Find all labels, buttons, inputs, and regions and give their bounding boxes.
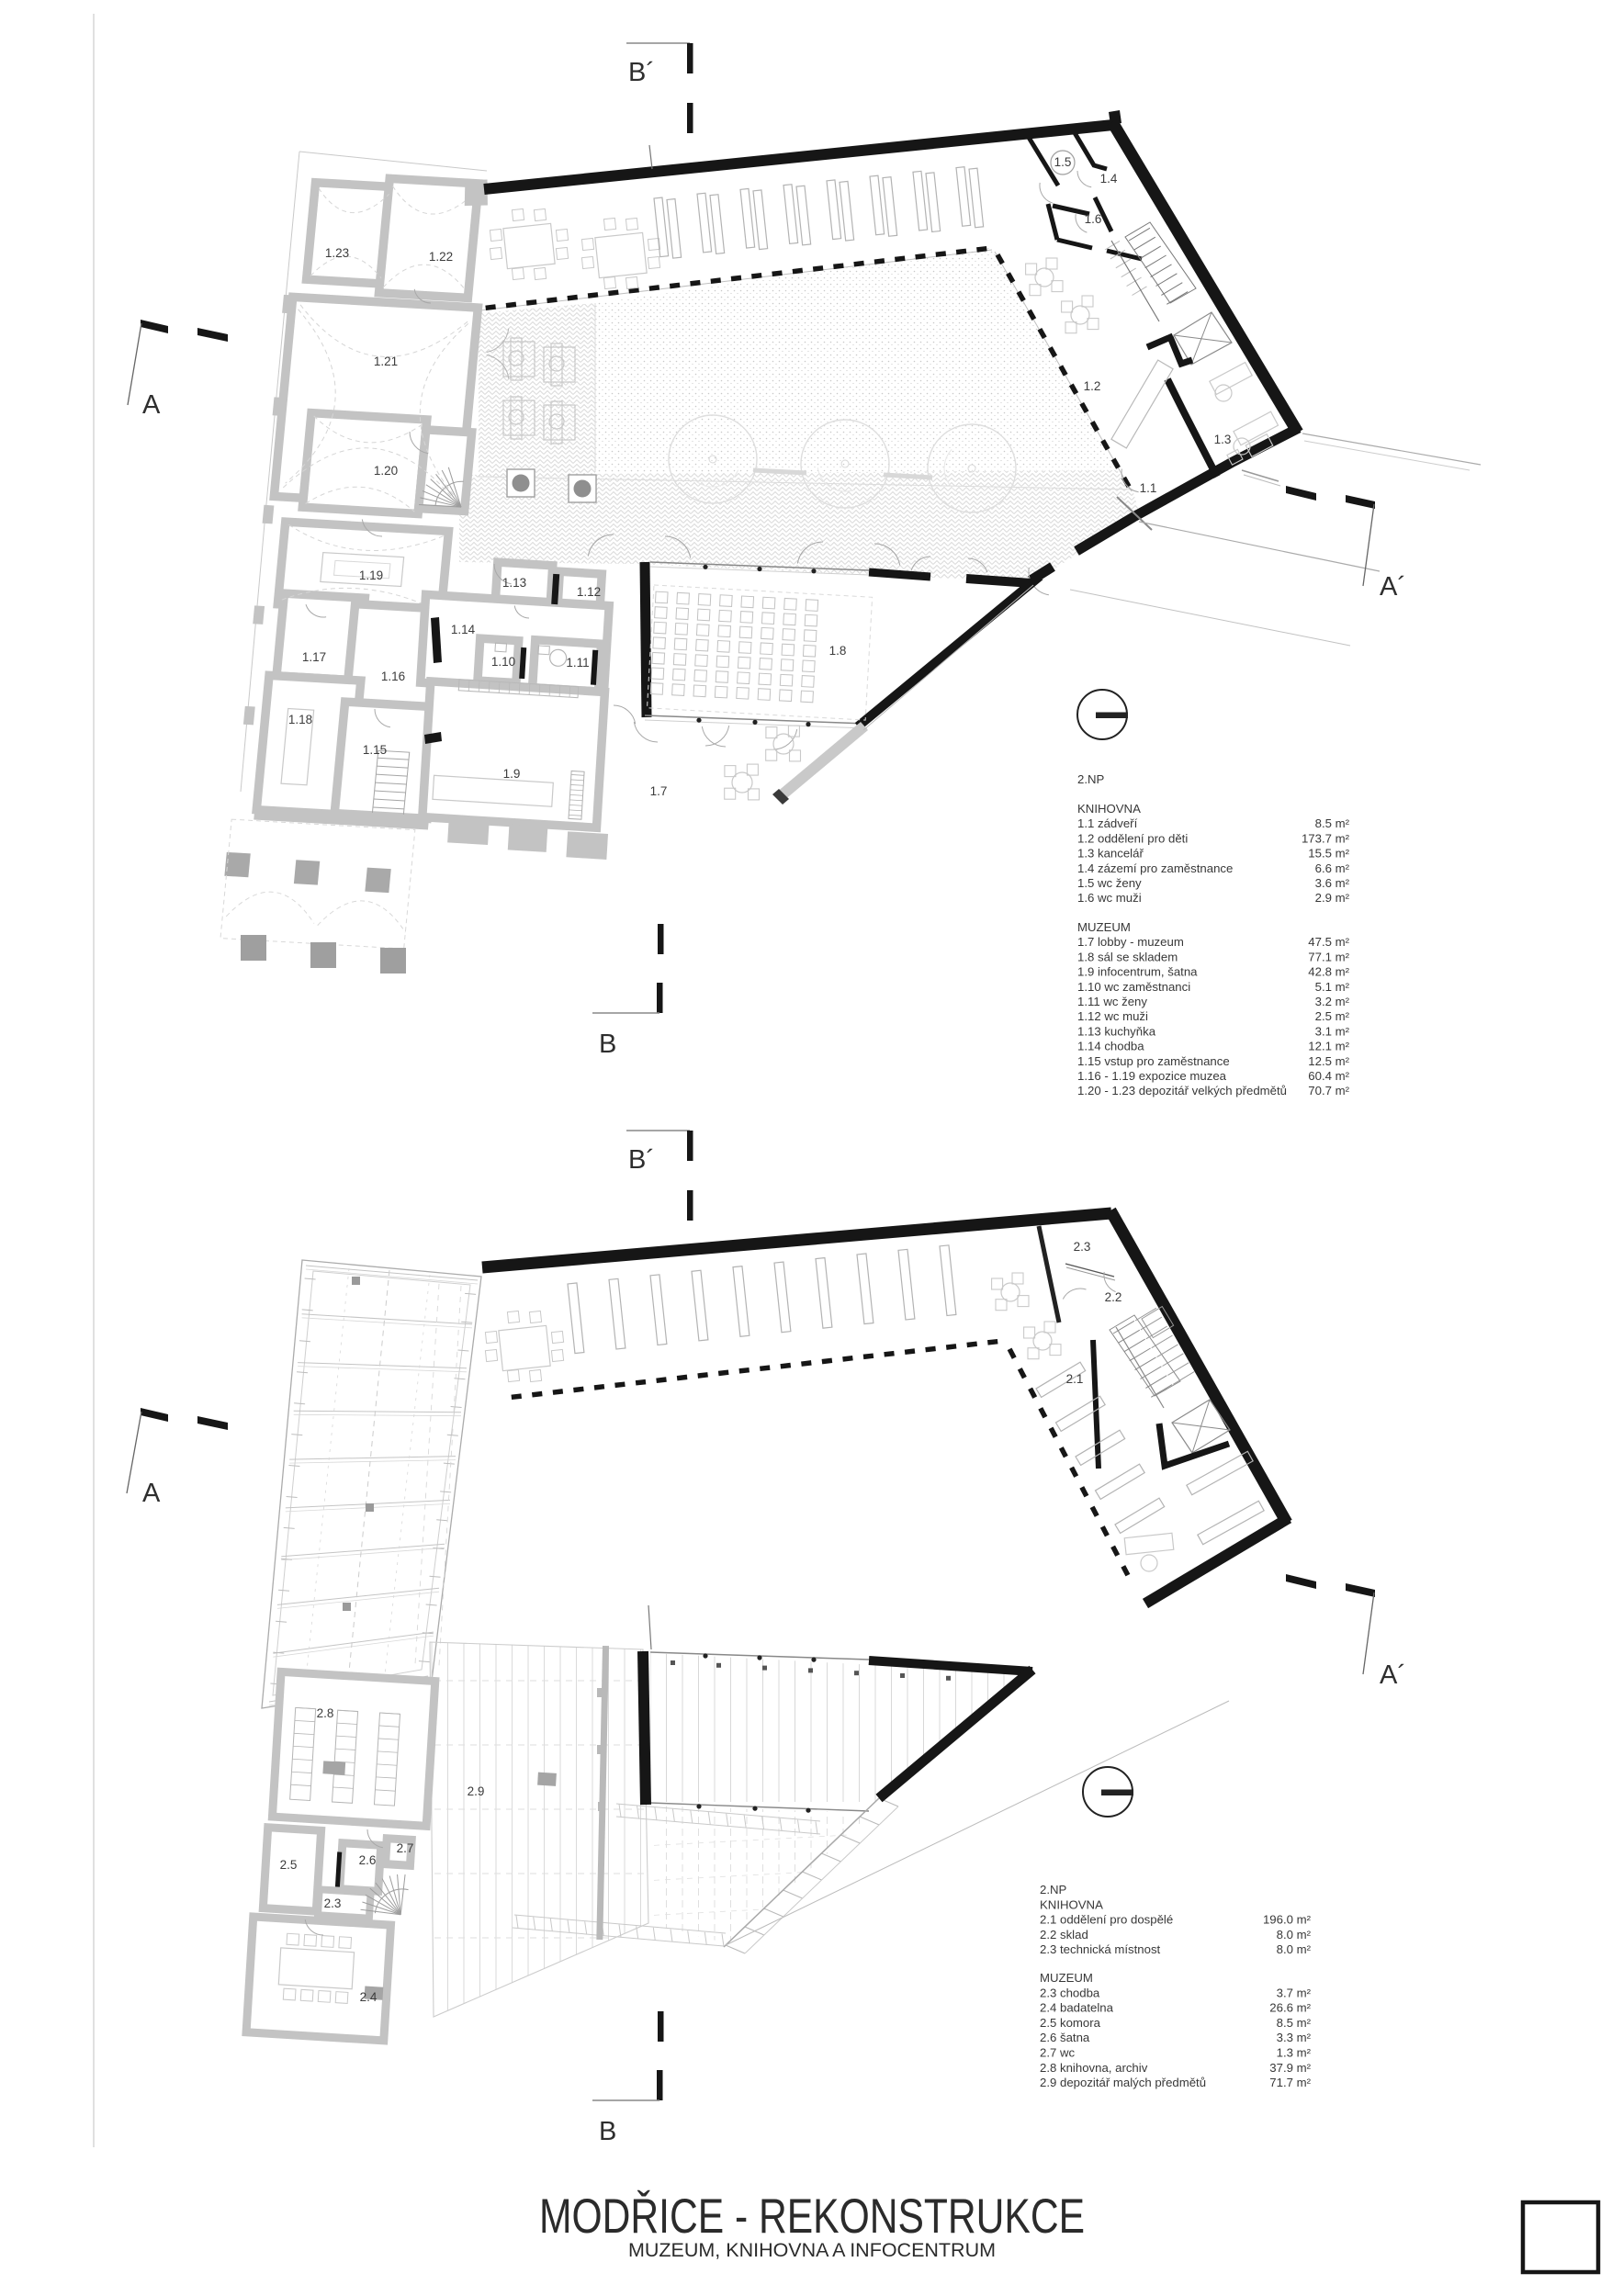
svg-text:A´: A´ — [1380, 572, 1406, 602]
svg-text:60.4 m²: 60.4 m² — [1308, 1069, 1349, 1083]
svg-text:1.10: 1.10 — [491, 655, 515, 669]
svg-text:3.1 m²: 3.1 m² — [1315, 1024, 1350, 1038]
svg-text:2.1 oddělení pro dospělé: 2.1 oddělení pro dospělé — [1040, 1913, 1173, 1927]
svg-text:B´: B´ — [628, 58, 655, 87]
svg-text:1.14: 1.14 — [451, 623, 476, 636]
svg-text:2.3: 2.3 — [1074, 1240, 1091, 1254]
svg-text:1.5 wc ženy: 1.5 wc ženy — [1077, 876, 1142, 890]
svg-text:196.0 m²: 196.0 m² — [1263, 1913, 1312, 1927]
svg-text:2.NP: 2.NP — [1040, 1883, 1067, 1896]
svg-text:B: B — [599, 2117, 616, 2146]
svg-text:1.23: 1.23 — [325, 246, 349, 260]
svg-text:2.6: 2.6 — [359, 1853, 377, 1867]
svg-text:2.2 sklad: 2.2 sklad — [1040, 1928, 1088, 1941]
svg-text:6.6 m²: 6.6 m² — [1315, 861, 1350, 875]
svg-text:1.19: 1.19 — [359, 568, 383, 582]
svg-text:1.7: 1.7 — [650, 784, 668, 798]
svg-text:42.8 m²: 42.8 m² — [1308, 965, 1349, 979]
svg-text:8.0 m²: 8.0 m² — [1277, 1942, 1312, 1956]
svg-text:1.22: 1.22 — [429, 250, 453, 264]
svg-text:KNIHOVNA: KNIHOVNA — [1077, 802, 1141, 816]
svg-text:1.15: 1.15 — [363, 743, 387, 757]
svg-text:2.7 wc: 2.7 wc — [1040, 2046, 1076, 2060]
svg-text:1.13 kuchyňka: 1.13 kuchyňka — [1077, 1024, 1156, 1038]
svg-text:2.NP: 2.NP — [1077, 772, 1105, 786]
svg-text:71.7 m²: 71.7 m² — [1269, 2076, 1311, 2089]
svg-text:2.8 knihovna, archiv: 2.8 knihovna, archiv — [1040, 2061, 1148, 2075]
svg-text:2.9 m²: 2.9 m² — [1315, 891, 1350, 905]
svg-text:2.1: 2.1 — [1066, 1372, 1084, 1386]
svg-text:1.16 - 1.19 expozice muzea: 1.16 - 1.19 expozice muzea — [1077, 1069, 1227, 1083]
svg-text:2.7: 2.7 — [397, 1841, 414, 1855]
svg-text:15.5 m²: 15.5 m² — [1308, 847, 1349, 861]
svg-text:8.5 m²: 8.5 m² — [1277, 2016, 1312, 2030]
svg-text:2.2: 2.2 — [1105, 1290, 1122, 1304]
svg-text:1.7 lobby - muzeum: 1.7 lobby - muzeum — [1077, 935, 1184, 949]
svg-text:47.5 m²: 47.5 m² — [1308, 935, 1349, 949]
svg-text:1.10 wc zaměstnanci: 1.10 wc zaměstnanci — [1077, 980, 1190, 994]
svg-text:1.11 wc ženy: 1.11 wc ženy — [1077, 995, 1147, 1008]
svg-text:MUZEUM, KNIHOVNA A INFOCENTRUM: MUZEUM, KNIHOVNA A INFOCENTRUM — [628, 2239, 996, 2261]
svg-text:2.4: 2.4 — [360, 1990, 378, 2004]
svg-text:12.1 m²: 12.1 m² — [1308, 1040, 1349, 1053]
svg-text:3.2 m²: 3.2 m² — [1315, 995, 1350, 1008]
svg-text:2.6 šatna: 2.6 šatna — [1040, 2031, 1090, 2044]
svg-text:2.5: 2.5 — [280, 1858, 298, 1872]
svg-text:8.0 m²: 8.0 m² — [1277, 1928, 1312, 1941]
svg-text:1.20 - 1.23 depozitář velkých: 1.20 - 1.23 depozitář velkých předmětů — [1077, 1084, 1287, 1097]
svg-text:1.9: 1.9 — [503, 767, 521, 781]
svg-text:70.7 m²: 70.7 m² — [1308, 1084, 1349, 1097]
svg-text:1.2: 1.2 — [1084, 379, 1101, 393]
svg-text:1.8 sál se skladem: 1.8 sál se skladem — [1077, 950, 1178, 963]
svg-text:MODŘICE - REKONSTRUKCE: MODŘICE - REKONSTRUKCE — [539, 2189, 1085, 2244]
svg-text:1.3: 1.3 — [1214, 433, 1232, 446]
svg-text:2.4 badatelna: 2.4 badatelna — [1040, 2001, 1114, 2015]
svg-text:3.3 m²: 3.3 m² — [1277, 2031, 1312, 2044]
svg-text:2.8: 2.8 — [317, 1706, 334, 1720]
svg-text:12.5 m²: 12.5 m² — [1308, 1054, 1349, 1068]
svg-text:8.5 m²: 8.5 m² — [1315, 816, 1350, 830]
svg-text:3.7 m²: 3.7 m² — [1277, 1986, 1312, 1999]
svg-text:1.4 zázemí pro zaměstnance: 1.4 zázemí pro zaměstnance — [1077, 861, 1233, 875]
svg-text:2.9 depozitář malých předmětů: 2.9 depozitář malých předmětů — [1040, 2076, 1206, 2089]
svg-text:MUZEUM: MUZEUM — [1040, 1971, 1093, 1985]
svg-text:KNIHOVNA: KNIHOVNA — [1040, 1897, 1103, 1911]
svg-text:37.9 m²: 37.9 m² — [1269, 2061, 1311, 2075]
svg-text:MUZEUM: MUZEUM — [1077, 920, 1131, 934]
svg-text:2.3 technická místnost: 2.3 technická místnost — [1040, 1942, 1161, 1956]
svg-text:1.3 kancelář: 1.3 kancelář — [1077, 847, 1144, 861]
svg-text:1.6 wc muži: 1.6 wc muži — [1077, 891, 1142, 905]
svg-text:1.2 oddělení pro děti: 1.2 oddělení pro děti — [1077, 831, 1188, 845]
svg-text:1.1 zádveří: 1.1 zádveří — [1077, 816, 1138, 830]
svg-text:1.12 wc muži: 1.12 wc muži — [1077, 1009, 1148, 1023]
svg-text:1.18: 1.18 — [288, 713, 312, 726]
svg-text:173.7 m²: 173.7 m² — [1302, 831, 1350, 845]
svg-text:1.11: 1.11 — [566, 656, 589, 670]
svg-text:3.6 m²: 3.6 m² — [1315, 876, 1350, 890]
svg-text:1.9 infocentrum, šatna: 1.9 infocentrum, šatna — [1077, 965, 1198, 979]
svg-text:B: B — [599, 1030, 616, 1059]
svg-text:1.16: 1.16 — [381, 670, 405, 683]
svg-text:5.1 m²: 5.1 m² — [1315, 980, 1350, 994]
svg-text:B´: B´ — [628, 1145, 655, 1175]
svg-text:A´: A´ — [1380, 1660, 1406, 1690]
svg-text:A: A — [142, 1479, 161, 1508]
svg-text:2.3 chodba: 2.3 chodba — [1040, 1986, 1100, 1999]
svg-text:1.21: 1.21 — [374, 355, 398, 368]
svg-text:1.13: 1.13 — [502, 576, 526, 590]
svg-text:1.3 m²: 1.3 m² — [1277, 2046, 1312, 2060]
svg-text:1.14 chodba: 1.14 chodba — [1077, 1040, 1144, 1053]
svg-text:1.4: 1.4 — [1100, 172, 1118, 186]
svg-text:2.5 komora: 2.5 komora — [1040, 2016, 1101, 2030]
svg-text:1.6: 1.6 — [1085, 212, 1102, 226]
svg-text:1.8: 1.8 — [829, 644, 847, 658]
svg-text:1.17: 1.17 — [302, 650, 326, 664]
svg-text:A: A — [142, 390, 161, 420]
svg-text:2.9: 2.9 — [468, 1784, 485, 1798]
svg-text:2.5 m²: 2.5 m² — [1315, 1009, 1350, 1023]
svg-text:26.6 m²: 26.6 m² — [1269, 2001, 1311, 2015]
svg-text:77.1 m²: 77.1 m² — [1308, 950, 1349, 963]
svg-text:1.5: 1.5 — [1054, 155, 1072, 169]
svg-text:1.20: 1.20 — [374, 464, 398, 478]
svg-text:2.3: 2.3 — [324, 1896, 342, 1910]
svg-text:1.12: 1.12 — [577, 585, 601, 599]
svg-text:1.15 vstup pro zaměstnance: 1.15 vstup pro zaměstnance — [1077, 1054, 1230, 1068]
svg-text:1.1: 1.1 — [1140, 481, 1157, 495]
